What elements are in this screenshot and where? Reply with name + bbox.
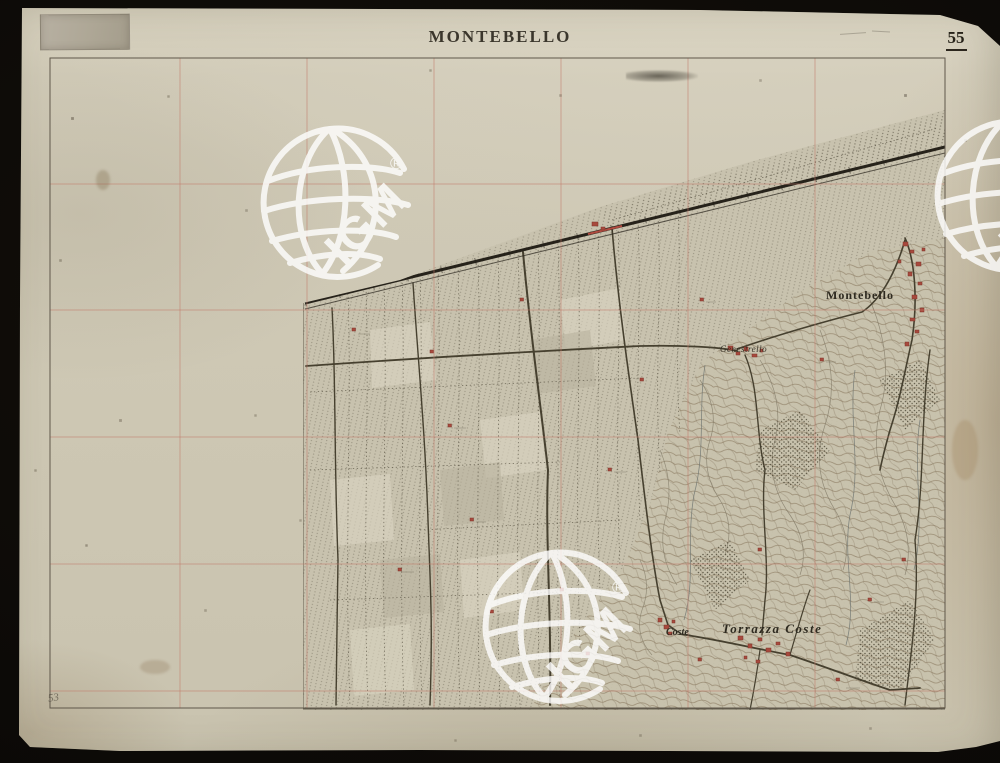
scanned-map-background: MONTEBELLO 55 bbox=[0, 0, 1000, 763]
paper-specks bbox=[0, 0, 1, 1]
igm-watermark-right-edge bbox=[938, 122, 1000, 270]
map-sheet-paper: MONTEBELLO 55 bbox=[0, 0, 1000, 763]
igm-watermarks: IGM ® bbox=[0, 0, 1000, 763]
igm-watermark-topleft bbox=[264, 129, 417, 277]
igm-watermark-bottom bbox=[486, 553, 639, 701]
